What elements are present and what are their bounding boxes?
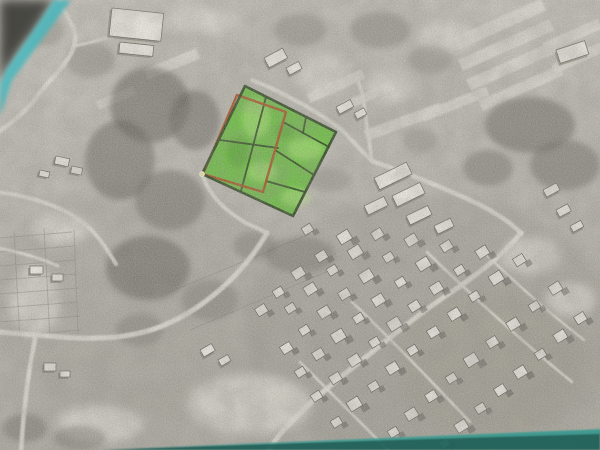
photographed-parcel-map xyxy=(0,0,600,450)
photo-grain-layer xyxy=(0,0,600,450)
photo-grain-light xyxy=(0,0,600,450)
aerial-photo xyxy=(0,0,600,450)
